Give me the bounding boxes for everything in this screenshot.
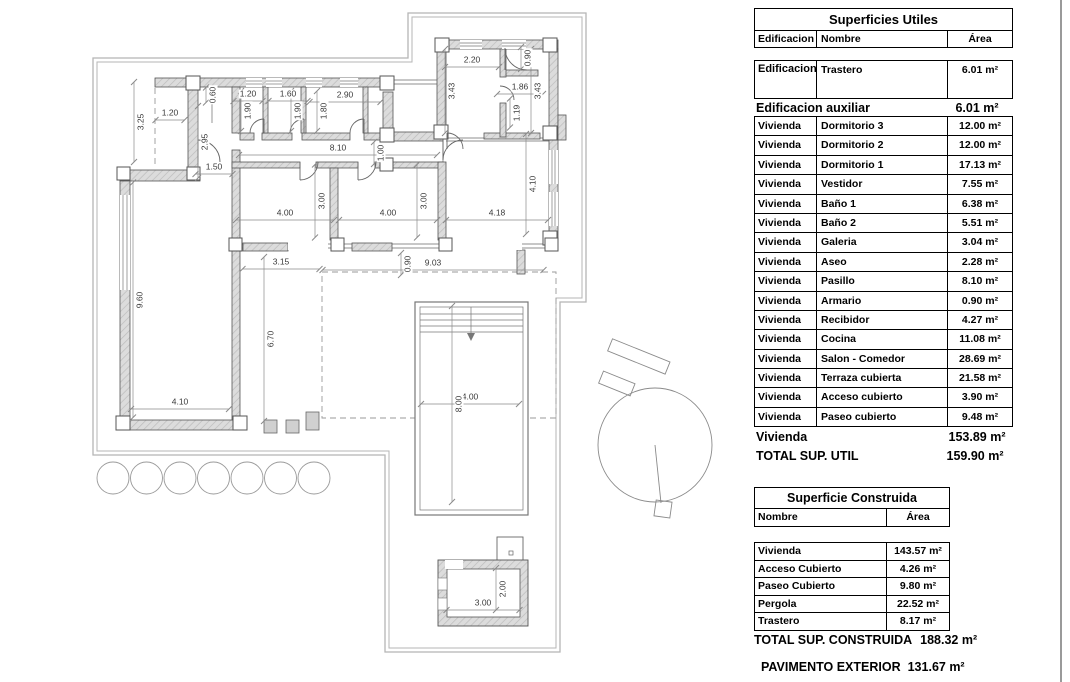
aux-subtotal-row: Edificacion auxiliar 6.01 m²: [754, 99, 1013, 116]
pavimento-label: PAVIMENTO EXTERIOR: [761, 660, 901, 674]
row-area: 12.00 m²: [948, 117, 1012, 135]
col-nombre: Nombre: [817, 31, 948, 47]
row-area: 11.08 m²: [948, 330, 1012, 348]
row-edificacion: Vivienda: [755, 253, 817, 271]
storage-building: [438, 537, 528, 626]
superficie-construida-table: Superficie Construida Nombre Área Vivien…: [754, 487, 950, 647]
table-row: Vivienda Dormitorio 3 12.00 m²: [755, 117, 1012, 136]
construida-rows: Vivienda 143.57 m² Acceso Cubierto 4.26 …: [754, 542, 950, 631]
row-edificacion: Vivienda: [755, 136, 817, 154]
row-nombre: Galeria: [817, 233, 948, 251]
utiles-header-box: Superficies Utiles Edificacion Nombre Ár…: [754, 8, 1013, 48]
table-row: Trastero 8.17 m²: [755, 613, 949, 630]
row-area: 8.10 m²: [948, 272, 1012, 290]
round-garden-feature: [598, 339, 712, 518]
table-row: Vivienda Acceso cubierto 3.90 m²: [755, 388, 1012, 407]
area-tables-panel: Superficies Utiles Edificacion Nombre Ár…: [754, 0, 1054, 682]
total-construida-label: TOTAL SUP. CONSTRUIDA: [754, 633, 912, 647]
table-row: Vivienda Terraza cubierta 21.58 m²: [755, 369, 1012, 388]
row-edificacion: Vivienda: [755, 233, 817, 251]
row-area: 21.58 m²: [948, 369, 1012, 387]
row-area: 7.55 m²: [948, 175, 1012, 193]
row-area: 9.48 m²: [948, 408, 1012, 426]
bushes-row: [97, 462, 330, 494]
row-area: 9.80 m²: [887, 578, 949, 595]
aux-building-row: Edificacion auxiliar Trastero 6.01 m²: [754, 60, 1013, 99]
table-row: Vivienda Galeria 3.04 m²: [755, 233, 1012, 252]
col-edificacion: Edificacion: [755, 31, 817, 47]
row-area: 12.00 m²: [948, 136, 1012, 154]
row-area: 5.51 m²: [948, 214, 1012, 232]
row-nombre: Cocina: [817, 330, 948, 348]
row-area: 17.13 m²: [948, 156, 1012, 174]
row-nombre: Paseo Cubierto: [755, 578, 887, 595]
floor-plan-drawing: [0, 0, 750, 682]
floor-plan: 1.20 3.25 2.95 1.50 0.60 1.20 1.60 2.90 …: [0, 0, 750, 682]
row-nombre: Vestidor: [817, 175, 948, 193]
total-util-row: TOTAL SUP. UTIL 159.90 m²: [754, 446, 1013, 466]
row-area: 0.90 m²: [948, 292, 1012, 310]
table-row: Vivienda Dormitorio 1 17.13 m²: [755, 156, 1012, 175]
table-row: Vivienda Dormitorio 2 12.00 m²: [755, 136, 1012, 155]
col-area: Área: [887, 509, 949, 526]
total-construida-value: 188.32 m²: [920, 633, 977, 647]
pavimento-value: 131.67 m²: [908, 660, 965, 674]
table-row: Vivienda Cocina 11.08 m²: [755, 330, 1012, 349]
total-construida-row: TOTAL SUP. CONSTRUIDA 188.32 m²: [754, 633, 1004, 647]
row-nombre: Dormitorio 3: [817, 117, 948, 135]
row-edificacion: Vivienda: [755, 156, 817, 174]
row-edificacion: Vivienda: [755, 388, 817, 406]
aux-nombre: Trastero: [817, 61, 948, 98]
row-area: 4.26 m²: [887, 561, 949, 578]
utiles-column-headers: Edificacion Nombre Área: [755, 31, 1012, 47]
vivienda-subtotal-value: 153.89 m²: [941, 430, 1013, 444]
row-nombre: Salon - Comedor: [817, 350, 948, 368]
row-edificacion: Vivienda: [755, 330, 817, 348]
row-area: 6.38 m²: [948, 195, 1012, 213]
total-util-value: 159.90 m²: [937, 449, 1013, 463]
table-row: Vivienda Pasillo 8.10 m²: [755, 272, 1012, 291]
table-row: Pergola 22.52 m²: [755, 596, 949, 614]
row-area: 2.28 m²: [948, 253, 1012, 271]
construida-column-headers: Nombre Área: [755, 509, 949, 526]
table-row: Vivienda Salon - Comedor 28.69 m²: [755, 350, 1012, 369]
vivienda-subtotal-label: Vivienda: [754, 430, 941, 444]
table-row: Vivienda Recibidor 4.27 m²: [755, 311, 1012, 330]
row-area: 22.52 m²: [887, 596, 949, 613]
row-nombre: Acceso Cubierto: [755, 561, 887, 578]
sheet-frame-line: [1060, 0, 1062, 682]
construida-header-box: Superficie Construida Nombre Área: [754, 487, 950, 527]
row-nombre: Baño 2: [817, 214, 948, 232]
table-row: Vivienda Baño 1 6.38 m²: [755, 195, 1012, 214]
aux-area: 6.01 m²: [948, 61, 1012, 98]
row-edificacion: Vivienda: [755, 369, 817, 387]
swimming-pool: [415, 302, 528, 515]
table-row: Vivienda 143.57 m²: [755, 543, 949, 561]
table-row: Vivienda Paseo cubierto 9.48 m²: [755, 408, 1012, 426]
table-row: Vivienda Baño 2 5.51 m²: [755, 214, 1012, 233]
row-edificacion: Vivienda: [755, 408, 817, 426]
aux-edificacion: Edificacion auxiliar: [755, 61, 817, 98]
row-area: 3.04 m²: [948, 233, 1012, 251]
row-area: 143.57 m²: [887, 543, 949, 560]
row-edificacion: Vivienda: [755, 175, 817, 193]
table-row: Acceso Cubierto 4.26 m²: [755, 561, 949, 579]
row-nombre: Pasillo: [817, 272, 948, 290]
table-row: Vivienda Aseo 2.28 m²: [755, 253, 1012, 272]
aux-subtotal-label: Edificacion auxiliar: [754, 101, 941, 115]
row-nombre: Baño 1: [817, 195, 948, 213]
row-nombre: Dormitorio 1: [817, 156, 948, 174]
row-nombre: Pergola: [755, 596, 887, 613]
row-nombre: Trastero: [755, 613, 887, 630]
row-nombre: Acceso cubierto: [817, 388, 948, 406]
floor-plan-sheet: 1.20 3.25 2.95 1.50 0.60 1.20 1.60 2.90 …: [0, 0, 1070, 682]
table-row: Vivienda Vestidor 7.55 m²: [755, 175, 1012, 194]
row-edificacion: Vivienda: [755, 350, 817, 368]
aux-subtotal-value: 6.01 m²: [941, 101, 1013, 115]
vivienda-subtotal-row: Vivienda 153.89 m²: [754, 427, 1013, 446]
row-edificacion: Vivienda: [755, 117, 817, 135]
row-edificacion: Vivienda: [755, 195, 817, 213]
row-area: 8.17 m²: [887, 613, 949, 630]
row-nombre: Recibidor: [817, 311, 948, 329]
construida-title: Superficie Construida: [755, 488, 949, 509]
row-nombre: Paseo cubierto: [817, 408, 948, 426]
row-nombre: Aseo: [817, 253, 948, 271]
row-nombre: Vivienda: [755, 543, 887, 560]
row-edificacion: Vivienda: [755, 292, 817, 310]
pavimento-exterior-row: PAVIMENTO EXTERIOR 131.67 m²: [761, 660, 965, 674]
vivienda-rows: Vivienda Dormitorio 3 12.00 m² Vivienda …: [754, 116, 1013, 427]
pergola-posts: [264, 412, 319, 433]
col-nombre: Nombre: [755, 509, 887, 526]
row-nombre: Armario: [817, 292, 948, 310]
col-area: Área: [948, 31, 1012, 47]
table-row: Paseo Cubierto 9.80 m²: [755, 578, 949, 596]
utiles-title: Superficies Utiles: [755, 9, 1012, 31]
row-edificacion: Vivienda: [755, 311, 817, 329]
row-area: 28.69 m²: [948, 350, 1012, 368]
row-edificacion: Vivienda: [755, 214, 817, 232]
row-nombre: Terraza cubierta: [817, 369, 948, 387]
table-row: Vivienda Armario 0.90 m²: [755, 292, 1012, 311]
superficies-utiles-table: Superficies Utiles Edificacion Nombre Ár…: [754, 8, 1013, 466]
row-area: 4.27 m²: [948, 311, 1012, 329]
total-util-label: TOTAL SUP. UTIL: [754, 449, 937, 463]
row-area: 3.90 m²: [948, 388, 1012, 406]
row-nombre: Dormitorio 2: [817, 136, 948, 154]
row-edificacion: Vivienda: [755, 272, 817, 290]
